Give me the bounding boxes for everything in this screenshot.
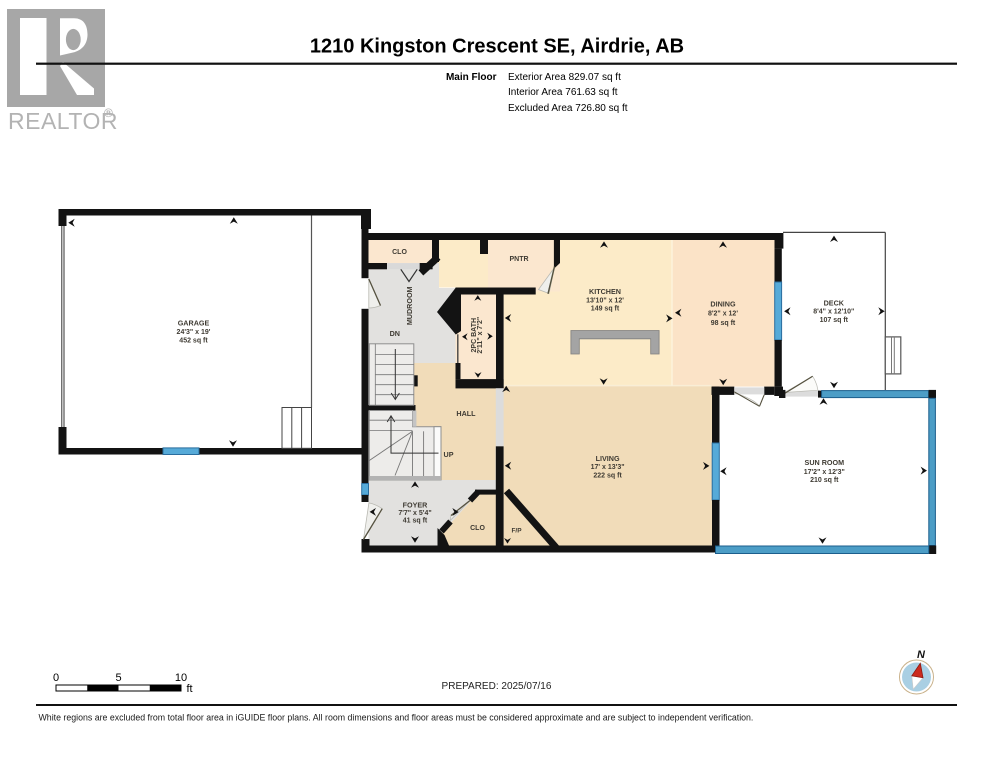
- svg-text:KITCHEN: KITCHEN: [589, 287, 621, 296]
- svg-text:MUDROOM: MUDROOM: [405, 286, 414, 325]
- svg-text:210 sq ft: 210 sq ft: [810, 477, 839, 484]
- svg-text:GARAGE: GARAGE: [178, 319, 210, 328]
- svg-text:222 sq ft: 222 sq ft: [593, 473, 622, 480]
- svg-text:8'4" x 12'10": 8'4" x 12'10": [813, 309, 854, 316]
- svg-text:N: N: [917, 649, 926, 661]
- svg-text:Exterior Area 829.07 sq ft: Exterior Area 829.07 sq ft: [508, 72, 621, 83]
- svg-text:2'11" x 7'2": 2'11" x 7'2": [477, 317, 484, 354]
- svg-text:UP: UP: [444, 450, 454, 459]
- svg-text:PREPARED: 2025/07/16: PREPARED: 2025/07/16: [442, 681, 552, 692]
- svg-text:5: 5: [115, 672, 121, 684]
- svg-text:8'2" x 12': 8'2" x 12': [708, 311, 738, 318]
- svg-text:7'7" x 5'4": 7'7" x 5'4": [398, 510, 431, 517]
- svg-text:10: 10: [175, 672, 187, 684]
- svg-text:24'3" x 19': 24'3" x 19': [177, 329, 211, 336]
- svg-text:Interior Area 761.63 sq ft: Interior Area 761.63 sq ft: [508, 87, 618, 98]
- svg-text:REALTOR: REALTOR: [8, 108, 118, 134]
- svg-text:107 sq ft: 107 sq ft: [820, 317, 849, 324]
- svg-text:PNTR: PNTR: [509, 256, 528, 263]
- svg-text:Excluded Area 726.80 sq ft: Excluded Area 726.80 sq ft: [508, 103, 628, 114]
- svg-text:FOYER: FOYER: [403, 500, 429, 509]
- svg-text:HALL: HALL: [456, 409, 476, 418]
- svg-text:17' x 13'3": 17' x 13'3": [591, 464, 625, 471]
- svg-text:Main Floor: Main Floor: [446, 72, 497, 83]
- svg-text:CLO: CLO: [392, 249, 407, 256]
- svg-text:DN: DN: [390, 329, 400, 338]
- svg-text:452 sq ft: 452 sq ft: [179, 337, 208, 344]
- svg-text:1210 Kingston Crescent SE, Air: 1210 Kingston Crescent SE, Airdrie, AB: [310, 36, 684, 58]
- svg-text:SUN ROOM: SUN ROOM: [805, 458, 845, 467]
- svg-text:17'2" x 12'3": 17'2" x 12'3": [804, 469, 845, 476]
- svg-text:LIVING: LIVING: [596, 454, 620, 463]
- svg-text:149 sq ft: 149 sq ft: [591, 305, 620, 312]
- svg-text:CLO: CLO: [470, 525, 485, 532]
- svg-text:13'10" x 12': 13'10" x 12': [586, 297, 624, 304]
- svg-text:F/P: F/P: [511, 527, 522, 534]
- svg-text:®: ®: [104, 106, 113, 120]
- svg-text:DECK: DECK: [824, 298, 845, 307]
- svg-text:98 sq ft: 98 sq ft: [711, 320, 736, 327]
- svg-text:ft: ft: [187, 683, 193, 695]
- svg-text:DINING: DINING: [710, 299, 736, 308]
- svg-text:White regions are excluded fro: White regions are excluded from total fl…: [39, 713, 754, 723]
- svg-text:0: 0: [53, 672, 59, 684]
- svg-text:41 sq ft: 41 sq ft: [403, 517, 428, 524]
